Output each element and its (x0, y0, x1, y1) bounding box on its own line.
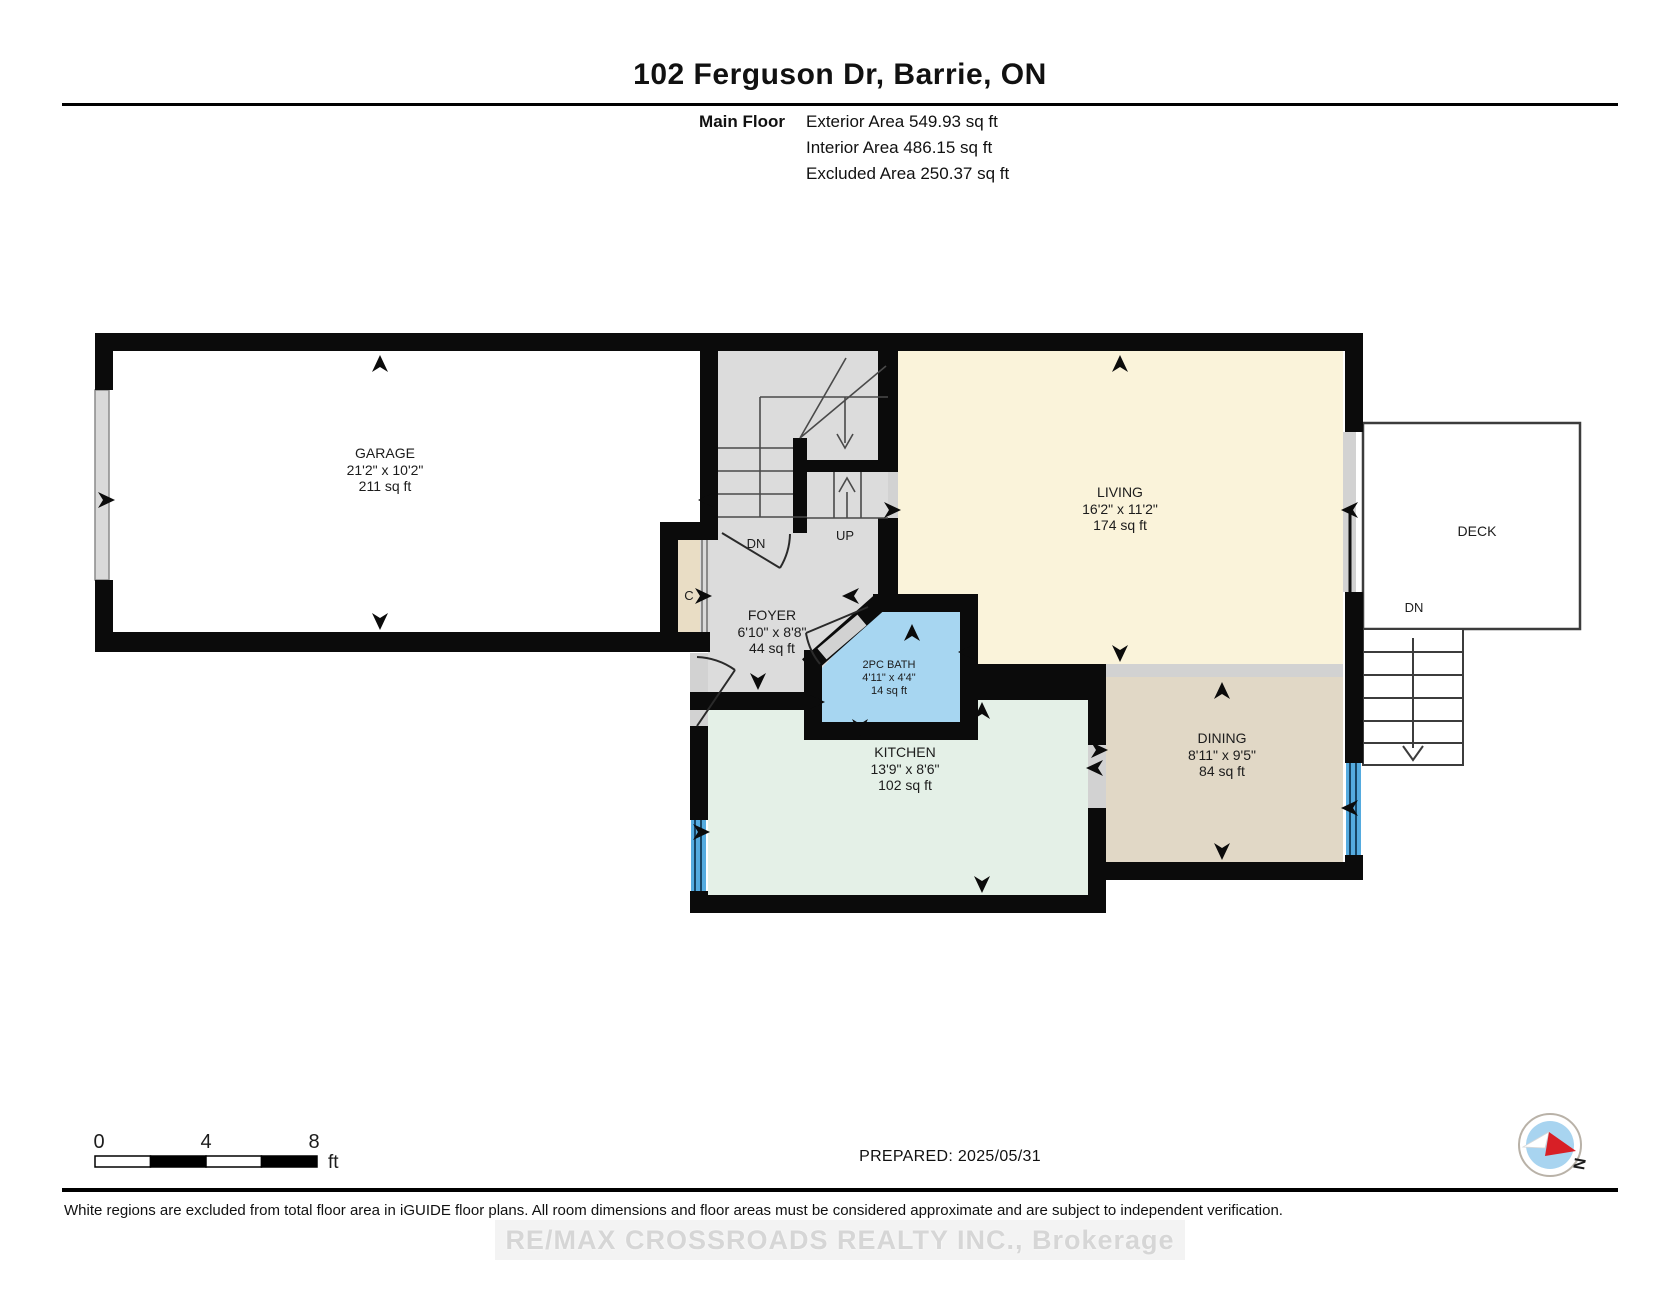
wall-dining-bottom (1088, 862, 1363, 880)
wall-garage-bottom (95, 632, 710, 652)
wall-closet-top (660, 522, 710, 540)
wall-kitchen-bottom (690, 895, 1106, 913)
dining-name: DINING (1198, 730, 1247, 746)
living-dims: 16'2" x 11'2" (1082, 501, 1158, 517)
compass-north-label: N (1569, 1156, 1588, 1170)
compass-icon: N (1519, 1114, 1588, 1176)
wall-living-left-lower (878, 518, 898, 598)
kitchen-area: 102 sq ft (878, 777, 932, 793)
exterior-stairs (1363, 629, 1463, 765)
footer-divider (62, 1188, 1618, 1192)
brokerage-watermark: RE/MAX CROSSROADS REALTY INC., Brokerage (495, 1220, 1185, 1260)
wall-top (95, 333, 1363, 351)
wall-kitchen-dining-upper (1088, 664, 1106, 745)
wall-living-left-upper (878, 351, 898, 467)
foyer-dims: 6'10" x 8'8" (738, 624, 807, 640)
room-fills (113, 351, 1343, 895)
floor-plan-page: 102 Ferguson Dr, Barrie, ON Main Floor E… (0, 0, 1680, 1299)
dining-dims: 8'11" x 9'5" (1188, 747, 1256, 763)
wall-garage-stair-divider (700, 351, 718, 540)
wall-garage-left-upper (95, 351, 113, 390)
living-area: 174 sq ft (1093, 517, 1147, 533)
stairs-up-label: UP (836, 528, 854, 543)
stairs-dn-label: DN (747, 536, 766, 551)
scale-tick-0: 0 (93, 1131, 104, 1153)
scale-seg-3 (206, 1156, 262, 1167)
scale-seg-1 (95, 1156, 151, 1167)
wall-living-right (1345, 333, 1363, 432)
wall-closet-left (660, 540, 678, 632)
closet-floor (678, 540, 700, 632)
floor-plan-drawing: GARAGE 21'2" x 10'2" 211 sq ft LIVING 16… (0, 0, 1680, 1299)
wall-kitchen-left-corner (690, 891, 708, 913)
living-name: LIVING (1097, 484, 1143, 500)
wall-bath-bottom (804, 722, 978, 740)
garage-area: 211 sq ft (359, 478, 412, 494)
kitchen-dims: 13'9" x 8'6" (871, 761, 940, 777)
garage-name: GARAGE (355, 445, 415, 461)
bath-area: 14 sq ft (871, 685, 907, 697)
deck-name: DECK (1458, 523, 1498, 539)
garage-door (95, 390, 109, 580)
wall-living-bottom-left (960, 664, 1106, 700)
scale-unit: ft (328, 1152, 339, 1173)
dining-area: 84 sq ft (1199, 763, 1245, 779)
kitchen-name: KITCHEN (874, 744, 935, 760)
living-dining-opening-sill (1106, 664, 1343, 677)
bath-dims: 4'11" x 4'4" (862, 672, 915, 684)
scale-bar: 0 4 8 ft (93, 1131, 339, 1173)
foyer-name: FOYER (748, 607, 796, 623)
bath-name: 2PC BATH (863, 659, 916, 671)
garage-dims: 21'2" x 10'2" (347, 462, 424, 478)
scale-seg-4 (262, 1156, 318, 1167)
scale-tick-4: 4 (200, 1131, 211, 1153)
deck-dn-label: DN (1405, 600, 1424, 615)
scale-seg-2 (151, 1156, 207, 1167)
wall-dining-right-upper (1345, 592, 1363, 763)
scale-tick-8: 8 (308, 1131, 319, 1153)
wall-dining-right-lower (1345, 855, 1363, 880)
foyer-area: 44 sq ft (749, 640, 795, 656)
wall-foyer-left (690, 726, 708, 820)
disclaimer-text: White regions are excluded from total fl… (64, 1202, 1624, 1219)
wall-stair-divider (793, 438, 807, 533)
closet-label: C (684, 588, 693, 603)
prepared-date: PREPARED: 2025/05/31 (700, 1148, 1200, 1166)
